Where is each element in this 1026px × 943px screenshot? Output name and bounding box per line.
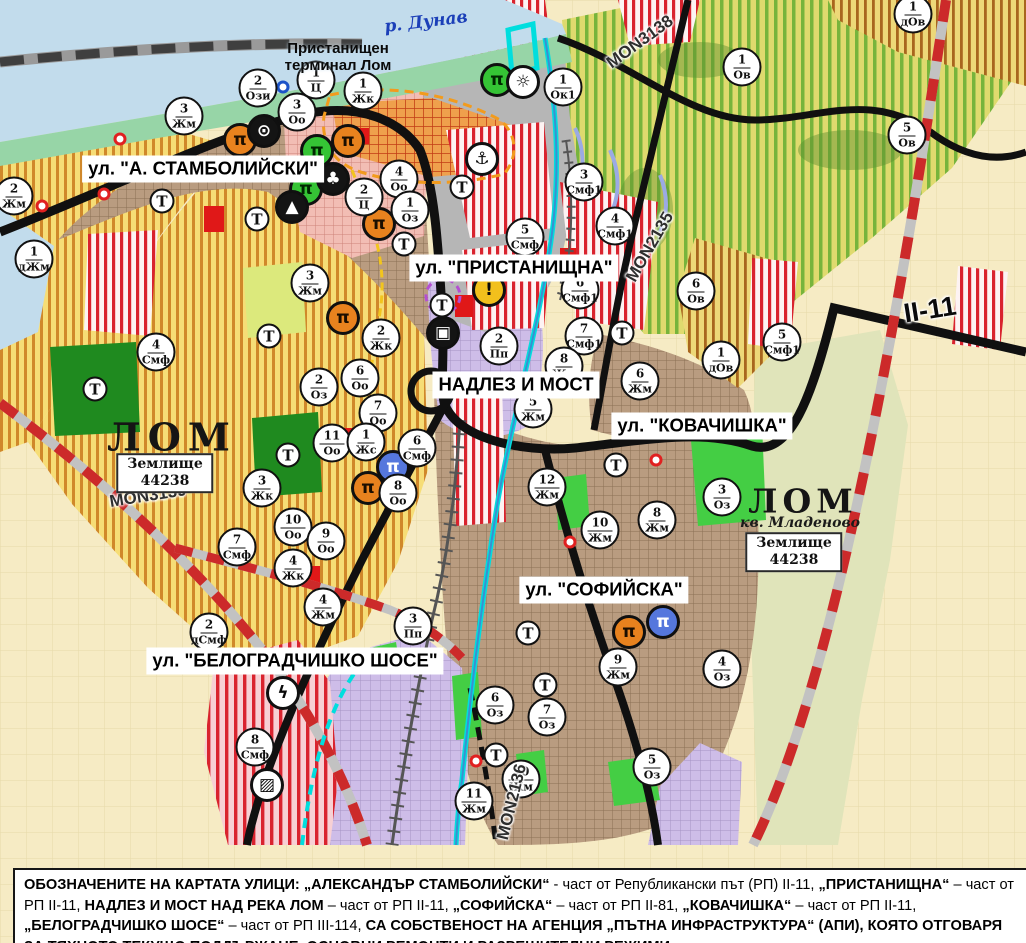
caption-segment: „КОВАЧИШКА“ <box>682 898 791 914</box>
land-register-box-east: Землище 44238 <box>745 532 842 572</box>
caption-segment: – част от РП II-11, <box>324 898 453 914</box>
caption-segment: – част от РП II-81, <box>552 898 682 914</box>
caption-segment: „ПРИСТАНИЩНА“ <box>818 877 949 893</box>
street-label-nadlez-i-most: НАДЛЕЗ И МОСТ <box>432 372 599 399</box>
port-terminal-label: Пристанищен терминал Лом <box>285 40 392 75</box>
street-label-belogradchishko-shose: ул. "БЕЛОГРАДЧИШКО ШОСЕ" <box>146 648 443 675</box>
street-label-kovachishka: ул. "КОВАЧИШКА" <box>611 413 792 440</box>
zoning-map-screenshot: р. Дунав Пристанищен терминал Лом ЛОМ ЛО… <box>0 0 1026 943</box>
district-label-mladenovo: кв. Младеново <box>740 515 860 531</box>
street-label-sofiyska: ул. "СОФИЙСКА" <box>519 577 688 604</box>
caption-segment: - част от Републикански път (РП) II-11, <box>550 877 819 893</box>
caption-segment: – част от РП II-11, <box>791 898 916 914</box>
caption-segment: НАДЛЕЗ И МОСТ НАД РЕКА ЛОМ <box>85 898 324 914</box>
land-register-box-west: Землище 44238 <box>116 453 213 493</box>
caption-segment: – част от РП III-114, <box>224 918 365 934</box>
caption-segment: „СОФИЙСКА“ <box>453 898 553 914</box>
caption-segment: „БЕЛОГРАДЧИШКО ШОСЕ“ <box>24 918 224 934</box>
street-label-pristanishtna: ул. "ПРИСТАНИЩНА" <box>409 255 618 282</box>
caption-segment: ОБОЗНАЧЕНИТЕ НА КАРТАТА УЛИЦИ: <box>24 877 304 893</box>
street-label-stamboliyski: ул. "А. СТАМБОЛИЙСКИ" <box>82 156 324 183</box>
map-caption: ОБОЗНАЧЕНИТЕ НА КАРТАТА УЛИЦИ: „АЛЕКСАНД… <box>13 868 1026 943</box>
caption-segment: „АЛЕКСАНДЪР СТАМБОЛИЙСКИ“ <box>304 877 550 893</box>
